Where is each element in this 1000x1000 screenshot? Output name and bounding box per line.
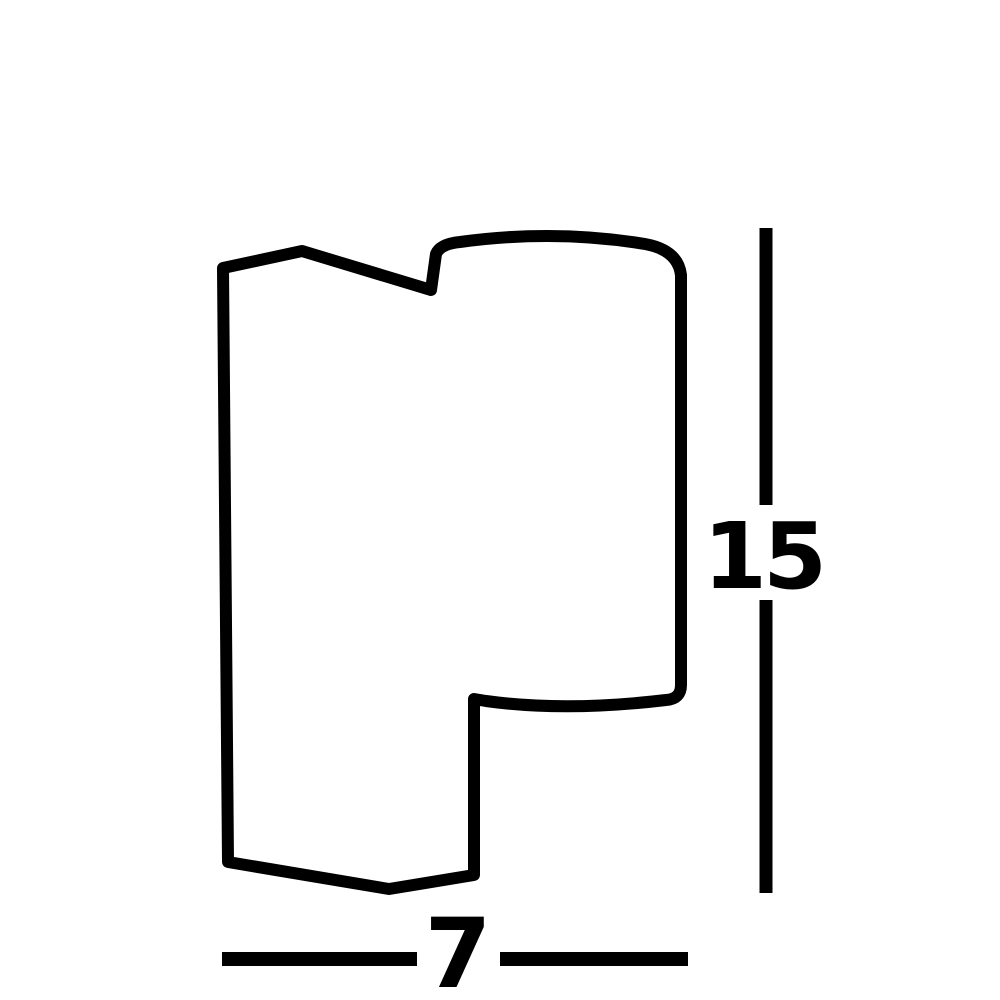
height-dimension-label: 15: [703, 503, 823, 610]
dimension-diagram: 15 7: [0, 0, 1000, 1000]
diagram-canvas: 15 7: [0, 0, 1000, 1000]
product-outline: [223, 236, 681, 889]
width-dimension-label: 7: [425, 898, 492, 1000]
